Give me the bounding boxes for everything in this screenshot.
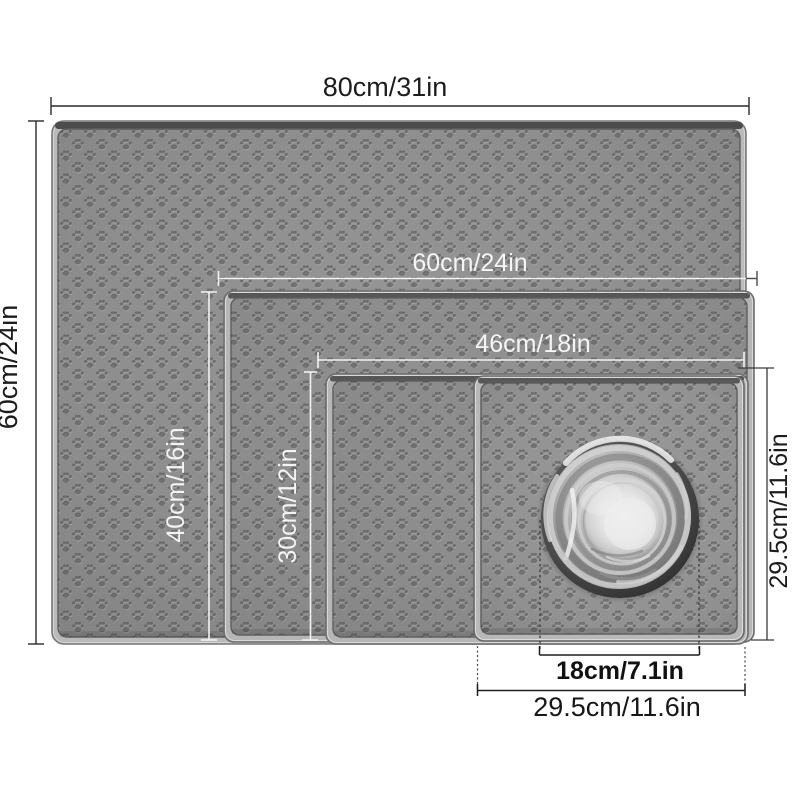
- svg-text:40cm/16in: 40cm/16in: [162, 427, 190, 542]
- svg-text:60cm/24in: 60cm/24in: [412, 249, 527, 277]
- svg-text:60cm/24in: 60cm/24in: [0, 305, 23, 430]
- svg-text:29.5cm/11.6in: 29.5cm/11.6in: [765, 433, 793, 588]
- svg-text:29.5cm/11.6in: 29.5cm/11.6in: [533, 692, 701, 722]
- svg-text:80cm/31in: 80cm/31in: [323, 72, 448, 102]
- svg-text:46cm/18in: 46cm/18in: [475, 330, 590, 358]
- svg-text:30cm/12in: 30cm/12in: [274, 448, 302, 563]
- svg-text:18cm/7.1in: 18cm/7.1in: [556, 657, 684, 685]
